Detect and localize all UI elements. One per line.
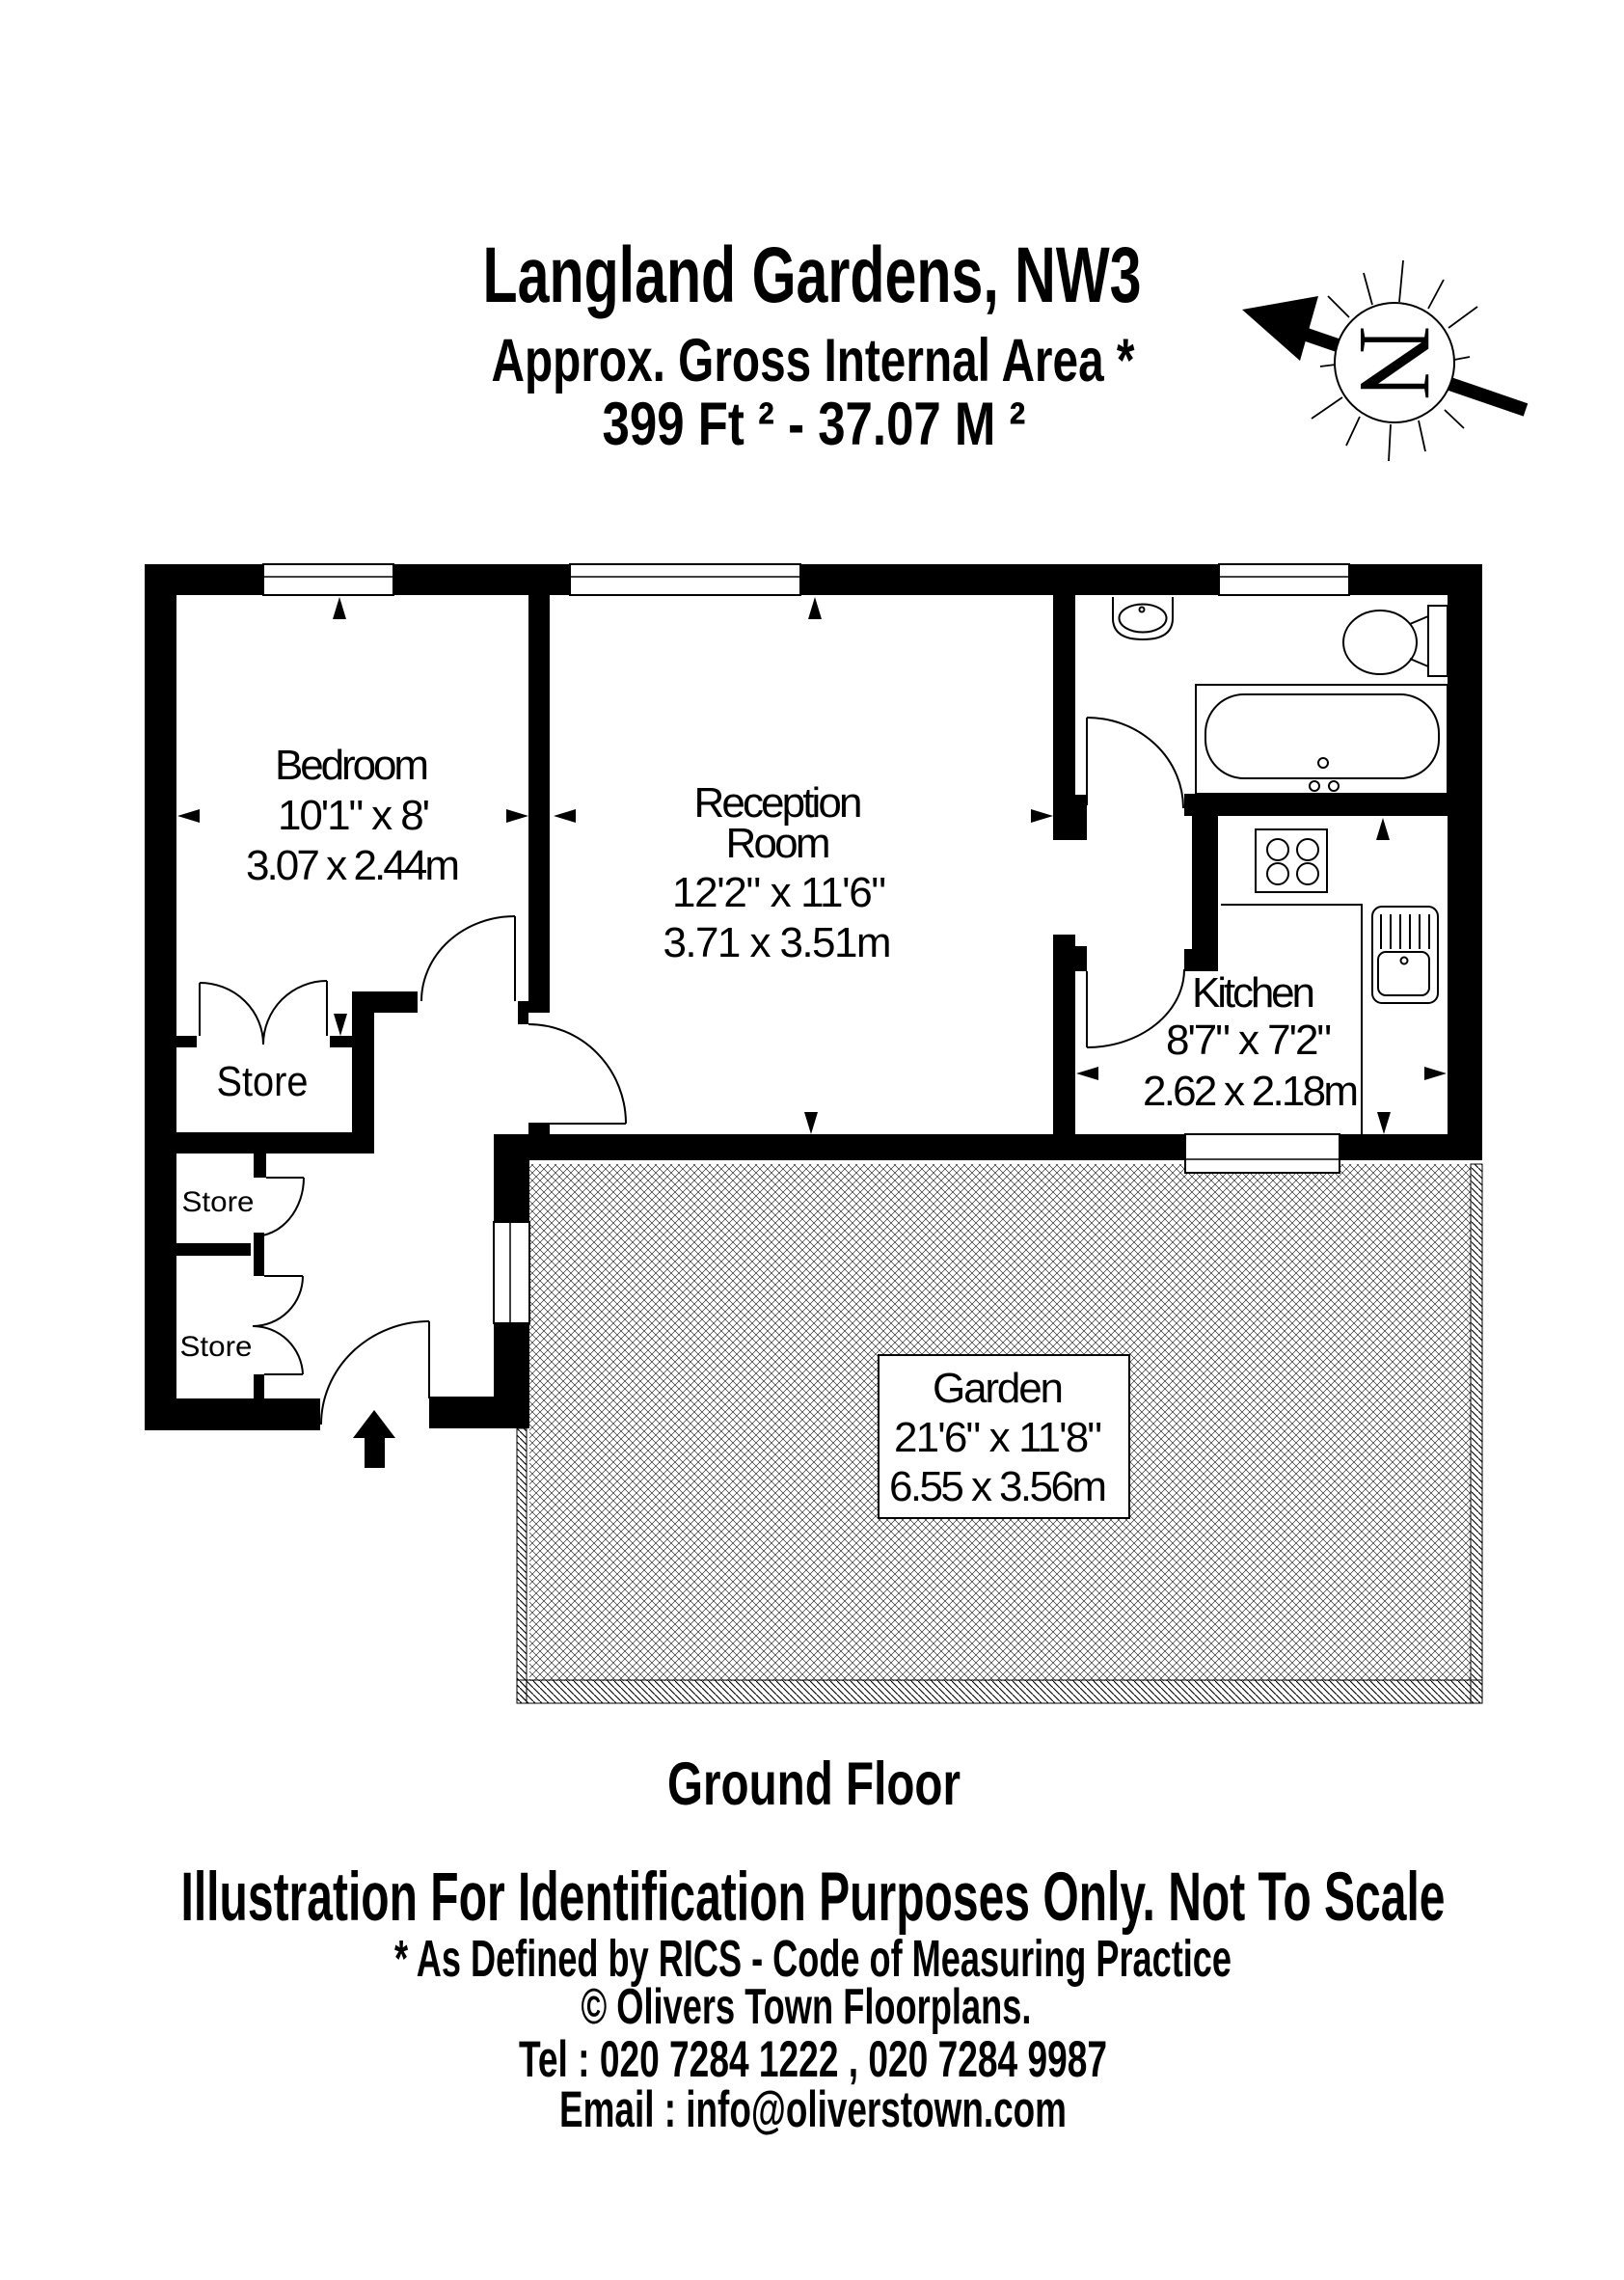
svg-text:10'1" x 8': 10'1" x 8': [278, 792, 430, 839]
svg-text:Email : info@oliverstown.com: Email : info@oliverstown.com: [559, 2081, 1067, 2138]
svg-text:© Olivers Town Floorplans.: © Olivers Town Floorplans.: [582, 1979, 1032, 2035]
svg-text:Kitchen: Kitchen: [1192, 969, 1315, 1017]
svg-text:21'6" x 11'8": 21'6" x 11'8": [894, 1414, 1102, 1461]
svg-text:Langland Gardens, NW3: Langland Gardens, NW3: [483, 231, 1142, 319]
svg-text:2.62 x 2.18m: 2.62 x 2.18m: [1143, 1068, 1359, 1115]
svg-text:3.07 x 2.44m: 3.07 x 2.44m: [246, 842, 460, 889]
svg-text:399 Ft ² - 37.07 M ²: 399 Ft ² - 37.07 M ²: [603, 391, 1026, 458]
svg-text:Store: Store: [180, 1331, 253, 1363]
svg-text:Ground Floor: Ground Floor: [667, 1751, 961, 1818]
svg-text:3.71 x 3.51m: 3.71 x 3.51m: [663, 919, 892, 966]
svg-text:6.55 x 3.56m: 6.55 x 3.56m: [889, 1463, 1107, 1510]
svg-text:Store: Store: [182, 1186, 255, 1218]
svg-text:Room: Room: [726, 820, 831, 867]
svg-text:Illustration For Identificatio: Illustration For Identification Purposes…: [181, 1859, 1446, 1936]
svg-text:Store: Store: [217, 1058, 309, 1105]
svg-text:Bedroom: Bedroom: [275, 742, 429, 789]
svg-text:Garden: Garden: [933, 1365, 1064, 1412]
svg-text:8'7" x 7'2": 8'7" x 7'2": [1166, 1017, 1332, 1064]
svg-text:12'2" x 11'6": 12'2" x 11'6": [672, 869, 886, 916]
svg-text:N: N: [1338, 325, 1451, 399]
svg-text:Tel : 020 7284 1222 , 020 7284: Tel : 020 7284 1222 , 020 7284 9987: [519, 2031, 1107, 2088]
svg-text:Approx. Gross Internal Area *: Approx. Gross Internal Area *: [492, 327, 1135, 394]
